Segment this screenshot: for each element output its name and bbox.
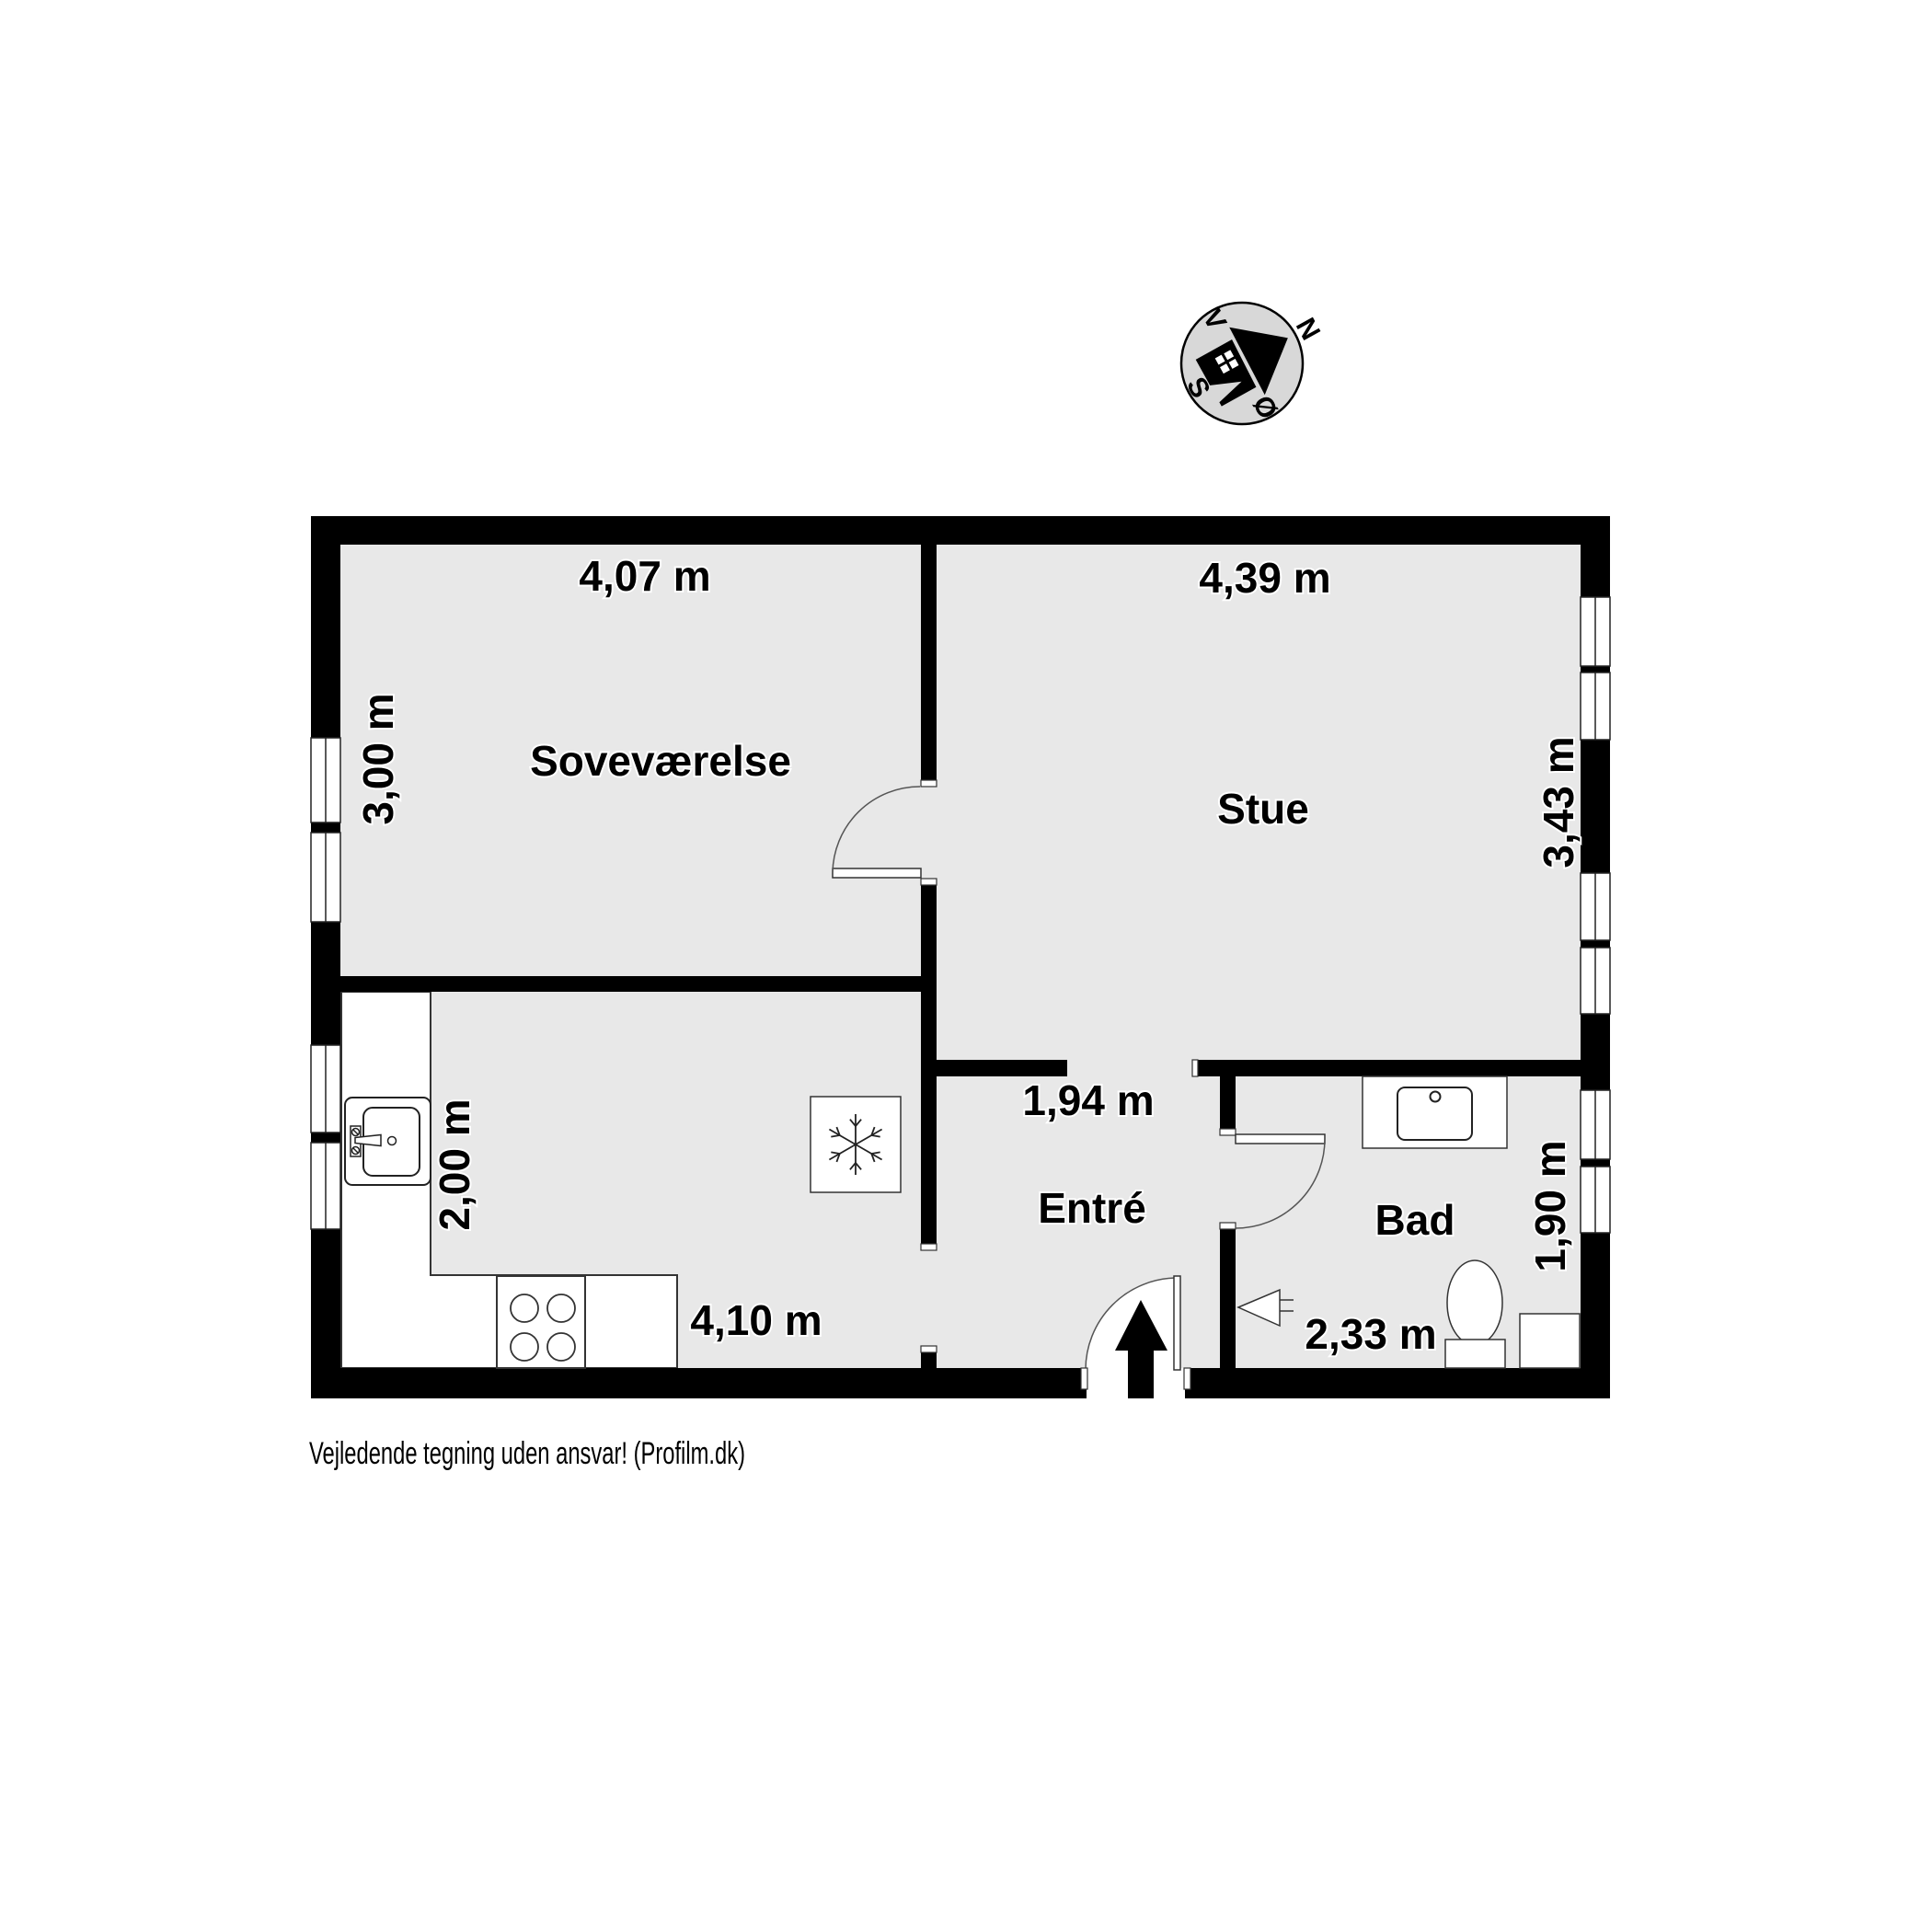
svg-text:Bad: Bad (1375, 1196, 1455, 1244)
svg-text:Stue: Stue (1217, 785, 1309, 833)
svg-text:3,00 m: 3,00 m (354, 693, 402, 824)
svg-text:2,33 m: 2,33 m (1305, 1310, 1436, 1358)
svg-text:1,94 m: 1,94 m (1022, 1076, 1154, 1124)
svg-text:2,00 m: 2,00 m (431, 1098, 478, 1230)
svg-text:4,39 m: 4,39 m (1199, 554, 1330, 602)
svg-text:1,90 m: 1,90 m (1526, 1140, 1574, 1271)
svg-text:4,07 m: 4,07 m (579, 552, 710, 600)
svg-text:Entré: Entré (1038, 1184, 1146, 1232)
svg-text:Soveværelse: Soveværelse (530, 737, 791, 785)
svg-text:4,10 m: 4,10 m (690, 1296, 822, 1344)
svg-text:3,43 m: 3,43 m (1535, 736, 1582, 868)
svg-text:Vejledende tegning uden ansvar: Vejledende tegning uden ansvar! (Profilm… (309, 1436, 745, 1471)
